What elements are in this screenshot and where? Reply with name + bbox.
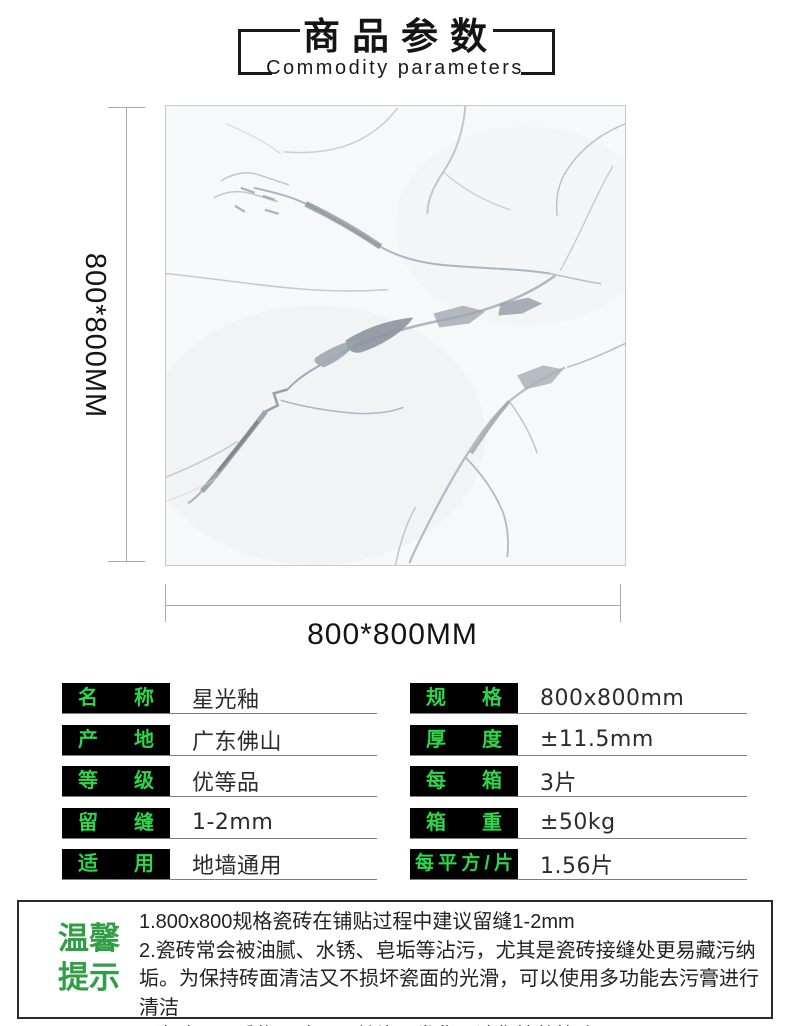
title-bracket-left-bottom-arm: [238, 72, 272, 75]
spec-label-size: 规 格: [410, 683, 518, 713]
dimension-line-horizontal: [165, 605, 621, 606]
tip-item-3: 3.瓷砖属于重物易碎品，单片不发货，请您按整箱购买: [139, 1022, 769, 1026]
spec-row-per-sqm: 每平方/片 1.56片: [410, 849, 747, 879]
warm-tips-box: 温馨 提示 1.800x800规格瓷砖在铺贴过程中建议留缝1-2mm 2.瓷砖常…: [17, 900, 773, 1019]
tile-size-label-vertical: 800*800MM: [64, 105, 126, 566]
spec-label-box-weight: 箱 重: [410, 808, 518, 838]
dimension-tick-right: [620, 584, 621, 622]
spec-row-thickness: 厚 度 ±11.5mm: [410, 725, 747, 755]
title-bracket-left-top-arm: [238, 29, 300, 32]
spec-value-application: 地墙通用: [192, 848, 282, 880]
spec-value-thickness: ±11.5mm: [540, 727, 654, 752]
spec-label-per-box: 每 箱: [410, 766, 518, 796]
spec-value-name: 星光釉: [192, 682, 260, 714]
row-underline: [62, 879, 377, 880]
row-underline: [410, 713, 747, 714]
spec-row-grade: 等 级 优等品: [62, 766, 377, 796]
row-underline: [410, 796, 747, 797]
title-bracket-left-vertical: [238, 29, 241, 75]
title-bracket-right-bottom-arm: [521, 72, 555, 75]
tip-item-1: 1.800x800规格瓷砖在铺贴过程中建议留缝1-2mm: [139, 908, 769, 937]
marble-veins-graphic: [166, 106, 625, 565]
spec-row-size: 规 格 800x800mm: [410, 683, 747, 713]
product-parameters-page: 商品参数 Commodity parameters: [0, 0, 790, 1026]
spec-column-right: 规 格 800x800mm 厚 度 ±11.5mm 每 箱 3片 箱 重 ±50…: [410, 683, 747, 891]
dimension-line-vertical: [126, 107, 127, 561]
spec-row-name: 名 称 星光釉: [62, 683, 377, 713]
marble-tile-image: [165, 105, 626, 566]
spec-row-application: 适 用 地墙通用: [62, 849, 377, 879]
title-bracket-right-top-arm: [493, 29, 555, 32]
row-underline: [410, 879, 747, 880]
dimension-tick-left: [165, 584, 166, 622]
spec-value-grade: 优等品: [192, 765, 260, 797]
spec-label-name: 名 称: [62, 683, 170, 713]
row-underline: [62, 755, 377, 756]
spec-label-application: 适 用: [62, 849, 170, 879]
tile-size-label-horizontal: 800*800MM: [165, 618, 620, 652]
spec-row-per-box: 每 箱 3片: [410, 766, 747, 796]
row-underline: [410, 755, 747, 756]
warm-tips-heading-line1: 温馨: [43, 919, 135, 958]
spec-label-origin: 产 地: [62, 725, 170, 755]
spec-value-per-box: 3片: [540, 765, 577, 797]
spec-label-grade: 等 级: [62, 766, 170, 796]
spec-column-left: 名 称 星光釉 产 地 广东佛山 等 级 优等品 留 缝 1-2mm 适 用 地…: [62, 683, 377, 891]
spec-row-gap: 留 缝 1-2mm: [62, 808, 377, 838]
spec-value-per-sqm: 1.56片: [540, 848, 614, 880]
spec-value-origin: 广东佛山: [192, 724, 282, 756]
row-underline: [410, 838, 747, 839]
page-title: 商品参数: [0, 6, 790, 60]
spec-label-thickness: 厚 度: [410, 725, 518, 755]
tip-item-2: 2.瓷砖常会被油腻、水锈、皂垢等沾污，尤其是瓷砖接缝处更易藏污纳垢。为保持砖面清…: [139, 937, 769, 1023]
title-bracket-right-vertical: [552, 29, 555, 75]
warm-tips-body: 1.800x800规格瓷砖在铺贴过程中建议留缝1-2mm 2.瓷砖常会被油腻、水…: [139, 908, 769, 1026]
spec-value-box-weight: ±50kg: [540, 810, 616, 835]
spec-row-origin: 产 地 广东佛山: [62, 725, 377, 755]
spec-label-gap: 留 缝: [62, 808, 170, 838]
warm-tips-heading: 温馨 提示: [43, 919, 135, 997]
spec-label-per-sqm: 每平方/片: [410, 849, 518, 879]
spec-value-size: 800x800mm: [540, 686, 684, 711]
row-underline: [62, 838, 377, 839]
row-underline: [62, 796, 377, 797]
spec-value-gap: 1-2mm: [192, 810, 273, 835]
row-underline: [62, 713, 377, 714]
spec-row-box-weight: 箱 重 ±50kg: [410, 808, 747, 838]
page-subtitle: Commodity parameters: [0, 57, 790, 80]
warm-tips-heading-line2: 提示: [43, 958, 135, 997]
